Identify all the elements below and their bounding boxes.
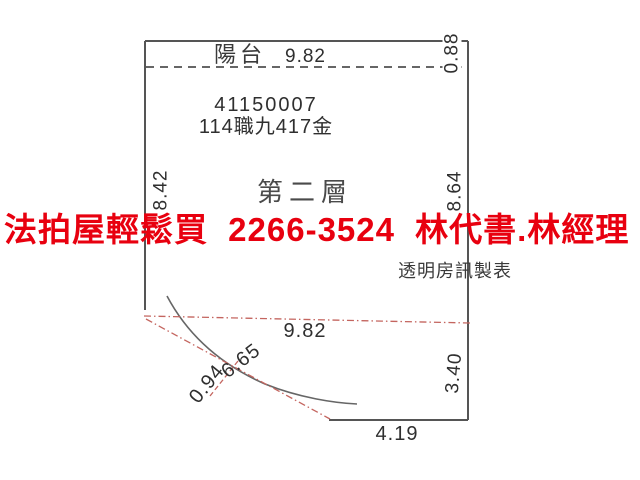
case-number: 41150007 xyxy=(214,95,318,115)
right-wall-dimension: 8.64 xyxy=(446,171,465,212)
bottom-width-dimension: 9.82 xyxy=(284,321,327,341)
floor-plan-page: 陽台 9.82 0.88 41150007 114職九417金 8.42 第二層… xyxy=(0,0,640,480)
balcony-label: 陽台 xyxy=(214,44,266,66)
chart-maker-credit: 透明房訊製表 xyxy=(398,262,512,280)
bottom-edge-dimension: 4.19 xyxy=(376,424,419,444)
case-name: 114職九417金 xyxy=(199,117,333,137)
left-wall-dimension: 8.42 xyxy=(152,170,171,211)
balcony-width-dimension: 9.82 xyxy=(285,47,326,66)
watermark-advert-text: 法拍屋輕鬆買 2266-3524 林代書.林經理 xyxy=(4,213,638,246)
balcony-depth-dimension: 0.88 xyxy=(443,31,462,76)
right-lower-dimension: 3.40 xyxy=(443,352,465,394)
floor-title: 第二層 xyxy=(257,179,353,205)
